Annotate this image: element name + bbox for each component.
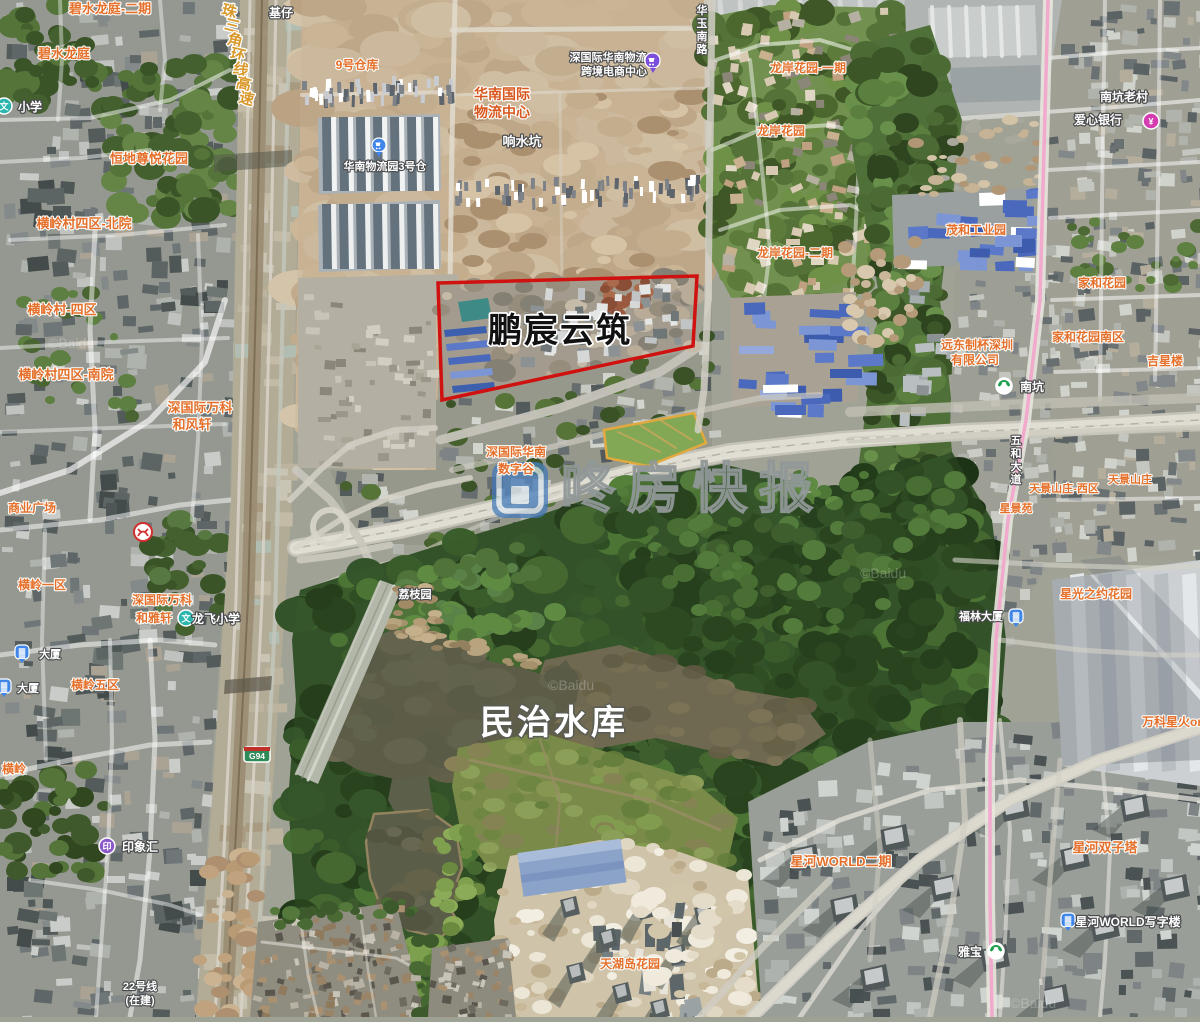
- svg-text:横岭村-四区: 横岭村-四区: [27, 302, 96, 317]
- svg-text:大厦: 大厦: [39, 647, 62, 661]
- svg-text:远东制杯深圳: 远东制杯深圳: [941, 337, 1013, 352]
- svg-text:深国际万科: 深国际万科: [167, 400, 232, 415]
- svg-text:天景山庄-西区: 天景山庄-西区: [1029, 481, 1099, 495]
- svg-text:南坑老村: 南坑老村: [1100, 89, 1148, 104]
- svg-text:家和花园南区: 家和花园南区: [1052, 329, 1124, 344]
- svg-text:星河双子塔: 星河双子塔: [1072, 840, 1138, 855]
- svg-text:数字谷: 数字谷: [498, 461, 535, 476]
- svg-text:南: 南: [697, 29, 708, 43]
- svg-text:龙岸花园-二期: 龙岸花园-二期: [757, 245, 833, 260]
- svg-text:大厦: 大厦: [17, 681, 40, 695]
- svg-text:有限公司: 有限公司: [951, 352, 999, 367]
- svg-text:文: 文: [180, 613, 191, 624]
- svg-text:龙飞小学: 龙飞小学: [192, 611, 240, 626]
- svg-text:9号仓库: 9号仓库: [336, 57, 379, 72]
- svg-text:鹏宸云筑: 鹏宸云筑: [488, 312, 632, 350]
- svg-text:福林大厦: 福林大厦: [958, 609, 1004, 623]
- svg-text:龙岸花园: 龙岸花园: [757, 123, 805, 138]
- svg-text:爱心银行: 爱心银行: [1074, 112, 1122, 127]
- svg-text:华南物流园3号仓: 华南物流园3号仓: [343, 159, 427, 173]
- svg-text:和风轩: 和风轩: [172, 417, 211, 432]
- svg-text:©Baidu: ©Baidu: [48, 335, 94, 351]
- svg-text:报: 报: [759, 459, 813, 519]
- svg-text:大: 大: [1011, 459, 1022, 473]
- svg-text:G94: G94: [249, 751, 265, 761]
- svg-text:横岭村四区-南院: 横岭村四区-南院: [18, 367, 113, 382]
- svg-text:南坑: 南坑: [1020, 379, 1044, 394]
- svg-text:雅宝: 雅宝: [957, 944, 982, 959]
- svg-text:快: 快: [693, 459, 748, 519]
- svg-text:星景苑: 星景苑: [1000, 501, 1033, 515]
- svg-text:玉: 玉: [697, 17, 708, 30]
- svg-text:物流中心: 物流中心: [474, 104, 530, 120]
- svg-text:华: 华: [697, 3, 708, 17]
- svg-text:茂和工业园: 茂和工业园: [946, 222, 1006, 237]
- svg-text:文: 文: [0, 101, 9, 112]
- svg-text:道: 道: [1011, 472, 1022, 486]
- svg-text:和: 和: [1011, 446, 1022, 460]
- svg-text:荔枝园: 荔枝园: [398, 587, 432, 601]
- svg-text:咚: 咚: [561, 459, 616, 519]
- svg-text:印象汇: 印象汇: [122, 839, 158, 854]
- svg-text:响水坑: 响水坑: [502, 134, 541, 149]
- svg-text:©Baidu: ©Baidu: [860, 565, 906, 581]
- svg-text:星河WORLD二期: 星河WORLD二期: [790, 854, 891, 869]
- svg-text:深国际华南: 深国际华南: [486, 444, 546, 459]
- svg-text:▓: ▓: [19, 648, 26, 659]
- svg-text:小学: 小学: [18, 99, 42, 114]
- svg-text:横岭五区: 横岭五区: [71, 677, 119, 692]
- svg-text:星光之约花园: 星光之约花园: [1060, 586, 1132, 601]
- svg-text:碧水龙庭-二期: 碧水龙庭-二期: [68, 1, 151, 16]
- svg-text:▓: ▓: [1, 682, 8, 693]
- svg-text:龙岸花园-一期: 龙岸花园-一期: [770, 60, 846, 75]
- svg-text:民治水库: 民治水库: [480, 704, 628, 742]
- svg-text:印: 印: [102, 841, 111, 852]
- svg-text:深国际万科: 深国际万科: [132, 592, 192, 607]
- svg-text:©Baidu: ©Baidu: [1010, 995, 1056, 1011]
- svg-text:横岭村四区-北院: 横岭村四区-北院: [36, 216, 131, 231]
- svg-text:华南国际: 华南国际: [474, 86, 530, 102]
- svg-text:深国际华南物流: 深国际华南物流: [570, 50, 647, 64]
- svg-text:和雅轩: 和雅轩: [135, 610, 172, 625]
- svg-text:▓: ▓: [1065, 916, 1072, 927]
- svg-text:¥: ¥: [1148, 117, 1153, 127]
- svg-text:家和花园: 家和花园: [1078, 275, 1126, 290]
- svg-text:©Baidu: ©Baidu: [548, 677, 594, 693]
- svg-text:商业广场: 商业广场: [8, 500, 56, 515]
- svg-text:恒地尊悦花园: 恒地尊悦花园: [110, 151, 188, 166]
- svg-text:吉星楼: 吉星楼: [1147, 353, 1183, 368]
- svg-text:天湖岛花园: 天湖岛花园: [600, 956, 660, 971]
- svg-text:基仔: 基仔: [268, 5, 293, 20]
- svg-text:万科星火on: 万科星火on: [1141, 714, 1200, 729]
- svg-text:碧水龙庭: 碧水龙庭: [37, 46, 91, 61]
- svg-text:▓: ▓: [1013, 612, 1020, 623]
- svg-text:(在建): (在建): [125, 993, 155, 1007]
- svg-text:横岭一区: 横岭一区: [18, 577, 66, 592]
- svg-text:路: 路: [697, 42, 709, 56]
- svg-text:五: 五: [1011, 434, 1022, 447]
- svg-text:横岭: 横岭: [2, 761, 26, 776]
- svg-text:跨境电商中心: 跨境电商中心: [581, 64, 647, 78]
- svg-text:房: 房: [627, 459, 681, 519]
- svg-text:天景山庄: 天景山庄: [1108, 472, 1152, 486]
- svg-text:22号线: 22号线: [123, 979, 157, 993]
- svg-text:星河WORLD写字楼: 星河WORLD写字楼: [1075, 914, 1180, 929]
